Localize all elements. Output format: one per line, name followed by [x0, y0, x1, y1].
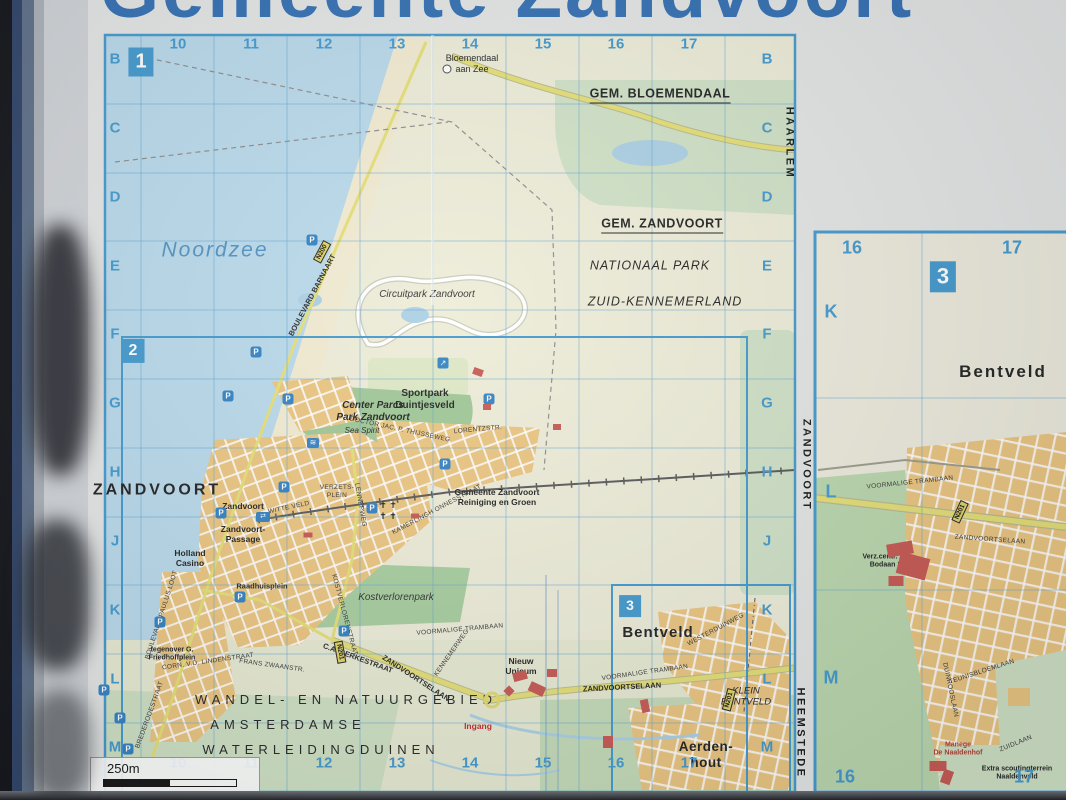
grid-row-J-right: J	[763, 533, 771, 550]
parking-icon: P	[123, 744, 134, 755]
label-wandel-natuurgebied: WANDEL- EN NATUURGEBIED	[195, 692, 497, 708]
grid-row-D-right: D	[762, 189, 773, 206]
grid-col-16-top: 16	[608, 36, 625, 53]
photo-of-map-sign: Gemeente Zandvoort GEM. BLOEMENDAALBloem…	[0, 0, 1066, 800]
label-teunisbloemlaan: TEUNISBLOEMLAAN	[948, 658, 1015, 686]
grid-row-C-left: C	[110, 120, 121, 137]
grid-row-K-left: K	[110, 602, 121, 619]
grid-col-17-bottom: 17	[681, 755, 698, 772]
label-bentveld-panel: Bentveld	[959, 362, 1047, 382]
road-badge-n201-2: N201	[722, 688, 736, 711]
label-boulevard-paulus-loot: BOULEVARD PAULUS LOOT	[144, 570, 180, 661]
grid-row-E-right: E	[762, 258, 772, 275]
parking-icon: P	[216, 508, 227, 519]
label-sportpark: Sportpark Duintjesveld	[395, 388, 454, 412]
label-zandvoortselaan-e: ZANDVOORTSELAAN	[583, 680, 662, 693]
building-red	[940, 769, 954, 786]
label-churches: ✝ ✝ ✝ ✝	[379, 500, 397, 522]
label-bodaan: Verz.centr. A.G. Bodaan St.	[862, 554, 913, 571]
grid-col-13-bottom: 13	[389, 755, 406, 772]
grid-row-D-left: D	[110, 189, 121, 206]
parking-icon: P	[99, 685, 110, 696]
label-zuid-kennemerland: ZUID-KENNEMERLAND	[588, 295, 743, 310]
grid-row-E-left: E	[110, 258, 120, 275]
grid-col-11-top: 11	[243, 36, 259, 53]
label-waterleidingduinen: WATERLEIDINGDUINEN	[202, 742, 439, 758]
grid-row-G-left: G	[109, 395, 121, 412]
scale-bar: 250m	[90, 757, 260, 793]
bloemendaal-circle-marker	[443, 65, 452, 74]
label-nationaal-park: NATIONAAL PARK	[590, 259, 710, 274]
label-verzetsplein: VERZETS- PLEIN	[320, 484, 355, 500]
grid-col-12-bottom: 12	[316, 755, 333, 772]
label-brederodestraat: BREDERODESTRAAT	[134, 680, 166, 749]
grid-col-14-top: 14	[462, 36, 479, 53]
panel-col-16-top: 16	[842, 238, 862, 259]
label-zandvoort-panel-edge: ZANDVOORT	[799, 419, 812, 511]
grid-col-14-bottom: 14	[462, 755, 479, 772]
label-boulevard-barnaart: BOULEVARD BARNAART	[287, 252, 338, 337]
grid-row-L-left: L	[110, 671, 119, 688]
grid-row-H-right: H	[762, 464, 773, 481]
label-nieuw-unicum: Nieuw Unicum	[505, 656, 536, 676]
label-klein-bentveld: KLEIN BENTVELD	[721, 686, 771, 709]
label-manege-naaldenhof: Manege De Naaldenhof	[933, 742, 982, 759]
label-duinrooslaan: DUINROOSLAAN	[940, 662, 959, 718]
grid-row-F-right: F	[762, 326, 771, 343]
grid-row-B-right: B	[762, 51, 773, 68]
photo-shadow	[30, 690, 90, 800]
grid-col-12-top: 12	[316, 36, 333, 53]
label-zuidlaan: ZUIDLAAN	[999, 734, 1034, 754]
inset-marker-3: 3	[931, 262, 955, 291]
parking-icon: P	[251, 347, 262, 358]
map-labels-layer: GEM. BLOEMENDAALBloemendaal aan ZeeGEM. …	[0, 0, 1066, 800]
label-noordzee: Noordzee	[161, 237, 268, 262]
grid-row-B-left: B	[110, 51, 121, 68]
label-voormalige-trambaan-panel: VOORMALIGE TRAMBAAN	[866, 475, 954, 492]
parking-icon: P	[440, 459, 451, 470]
label-naaldenveld: Extra scoutingterrein Naaldenveld	[982, 766, 1052, 783]
label-thijsseweg: DOCTOR JAC. P. THIJSSEWEG	[349, 416, 451, 445]
label-haarlem-edge: HAARLEM	[782, 107, 795, 180]
building-red	[896, 551, 931, 580]
panel-col-17-bottom: 17	[1014, 767, 1034, 788]
parking-icon: P	[223, 391, 234, 402]
label-circuitpark: Circuitpark Zandvoort	[379, 289, 475, 301]
parking-icon: P	[484, 394, 495, 405]
label-friedhoffplein: tegenover G. Friedhoffplein	[149, 647, 196, 664]
building-red	[503, 685, 514, 696]
grid-col-10-top: 10	[170, 36, 187, 53]
label-center-parcs: Center Parcs Park Zandvoort	[336, 400, 409, 424]
parking-icon: P	[155, 617, 166, 628]
label-sea-spirit: Sea Spirit	[345, 426, 380, 436]
station-icon: ⇄	[256, 512, 270, 522]
grid-col-15-top: 15	[535, 36, 552, 53]
building-red	[930, 761, 947, 771]
label-lorentzstr: LORENTZSTR.	[454, 424, 503, 436]
label-westerduinweg: WESTERDUINWEG	[686, 612, 745, 649]
label-zandvoortselaan-w: ZANDVOORTSELAAN	[381, 653, 452, 703]
parking-icon: P	[235, 592, 246, 603]
building-red	[304, 533, 313, 538]
label-holland-casino: Holland Casino	[174, 548, 205, 568]
label-gemeente-reiniging: Gemeente Zandvoort Reiniging en Groen	[454, 487, 539, 507]
panel-col-17-top: 17	[1002, 238, 1022, 259]
building-red	[472, 367, 484, 377]
road-badge-n201-1: N201	[334, 641, 347, 664]
photo-shadow	[24, 520, 90, 670]
panel-row-K: K	[825, 302, 838, 323]
parking-icon: P	[339, 626, 350, 637]
label-amsterdamse: AMSTERDAMSE	[210, 717, 365, 733]
grid-col-15-bottom: 15	[535, 755, 552, 772]
building-red	[553, 424, 561, 430]
panel-row-M: M	[824, 668, 839, 689]
grid-row-H-left: H	[110, 464, 121, 481]
viewpoint-icon: ↗	[438, 358, 449, 369]
inset-marker-2: 2	[123, 340, 144, 362]
grid-row-M-left: M	[109, 739, 122, 756]
grid-col-17-top: 17	[681, 36, 698, 53]
panel-row-L: L	[826, 482, 837, 503]
grid-row-M-right: M	[761, 739, 774, 756]
label-kamerlingh-onnesstraat: KAMERLINGH ONNESSTRAAT	[391, 483, 483, 537]
label-aerdenhout: Aerden- hout	[679, 739, 734, 771]
label-lennepweg: LENNEPWEG	[352, 483, 367, 528]
label-gem-bloemendaal: GEM. BLOEMENDAAL	[590, 87, 731, 104]
grid-row-G-right: G	[761, 395, 773, 412]
building-red	[512, 670, 528, 682]
grid-row-F-left: F	[110, 326, 119, 343]
photo-frame-bottom	[0, 791, 1066, 800]
building-red	[889, 576, 904, 586]
label-witte-veld: WITTE VELD	[268, 500, 311, 516]
parking-icon: P	[115, 713, 126, 724]
building-red	[640, 699, 651, 713]
label-frans-zwaanstr: FRANS ZWAANSTR.	[239, 658, 306, 675]
photo-shadow	[30, 225, 90, 475]
building-red	[547, 669, 557, 677]
scale-bar-graphic	[103, 779, 237, 787]
road-badge-n201-3: N201	[951, 500, 968, 523]
parking-icon: P	[283, 394, 294, 405]
building-red	[886, 540, 914, 557]
inset-marker-3: 3	[620, 596, 640, 616]
building-red	[603, 736, 613, 748]
roundabout-marker	[484, 692, 501, 709]
label-corn-lindenstraat: CORN. V.D. LINDENSTRAAT	[162, 652, 255, 673]
label-zandvoort-passage: Zandvoort- Passage	[221, 524, 265, 544]
parking-icon: P	[367, 503, 378, 514]
label-ingang: Ingang	[464, 721, 492, 731]
label-voormalige-trambaan-1: VOORMALIGE TRAMBAAN	[416, 622, 504, 637]
label-zandvoortselaan-panel: ZANDVOORTSELAAN	[954, 534, 1025, 547]
label-raadhuisplein: Raadhuisplein	[236, 582, 287, 591]
label-kennemerweg: KENNEMERWEG	[433, 628, 471, 678]
label-heemstede-edge: HEEMSTEDE	[793, 688, 806, 779]
pool-icon: ≋	[307, 438, 319, 448]
label-station-zandvoort: Zandvoort	[222, 501, 264, 511]
road-badge-n200-0: N200	[313, 240, 331, 263]
parking-icon: P	[279, 482, 290, 493]
label-zandvoort-town: ZANDVOORT	[93, 480, 221, 499]
building-red	[411, 514, 419, 519]
grid-col-13-top: 13	[389, 36, 406, 53]
label-gem-zandvoort: GEM. ZANDVOORT	[601, 217, 723, 234]
building-red	[483, 404, 491, 410]
building-red	[528, 681, 547, 697]
label-gerkestraat: C.A. GERKESTRAAT	[322, 641, 394, 675]
grid-row-K-right: K	[762, 602, 773, 619]
inset-marker-1: 1	[129, 49, 152, 76]
grid-row-J-left: J	[111, 533, 119, 550]
scale-label: 250m	[107, 761, 140, 776]
label-bloemendaal-aan-zee: Bloemendaal aan Zee	[446, 53, 499, 75]
panel-col-16-bottom: 16	[835, 767, 855, 788]
grid-row-C-right: C	[762, 120, 773, 137]
grid-row-L-right: L	[762, 671, 771, 688]
label-kostverlorenpark: Kostverlorenpark	[358, 592, 434, 604]
grid-col-16-bottom: 16	[608, 755, 625, 772]
parking-icon: P	[307, 235, 318, 246]
label-voormalige-trambaan-2: VOORMALIGE TRAMBAAN	[601, 663, 688, 683]
label-bentveld-main: Bentveld	[622, 624, 693, 642]
label-kostverlorenstraat: KOSTVERLORENSTRAAT	[329, 573, 358, 656]
